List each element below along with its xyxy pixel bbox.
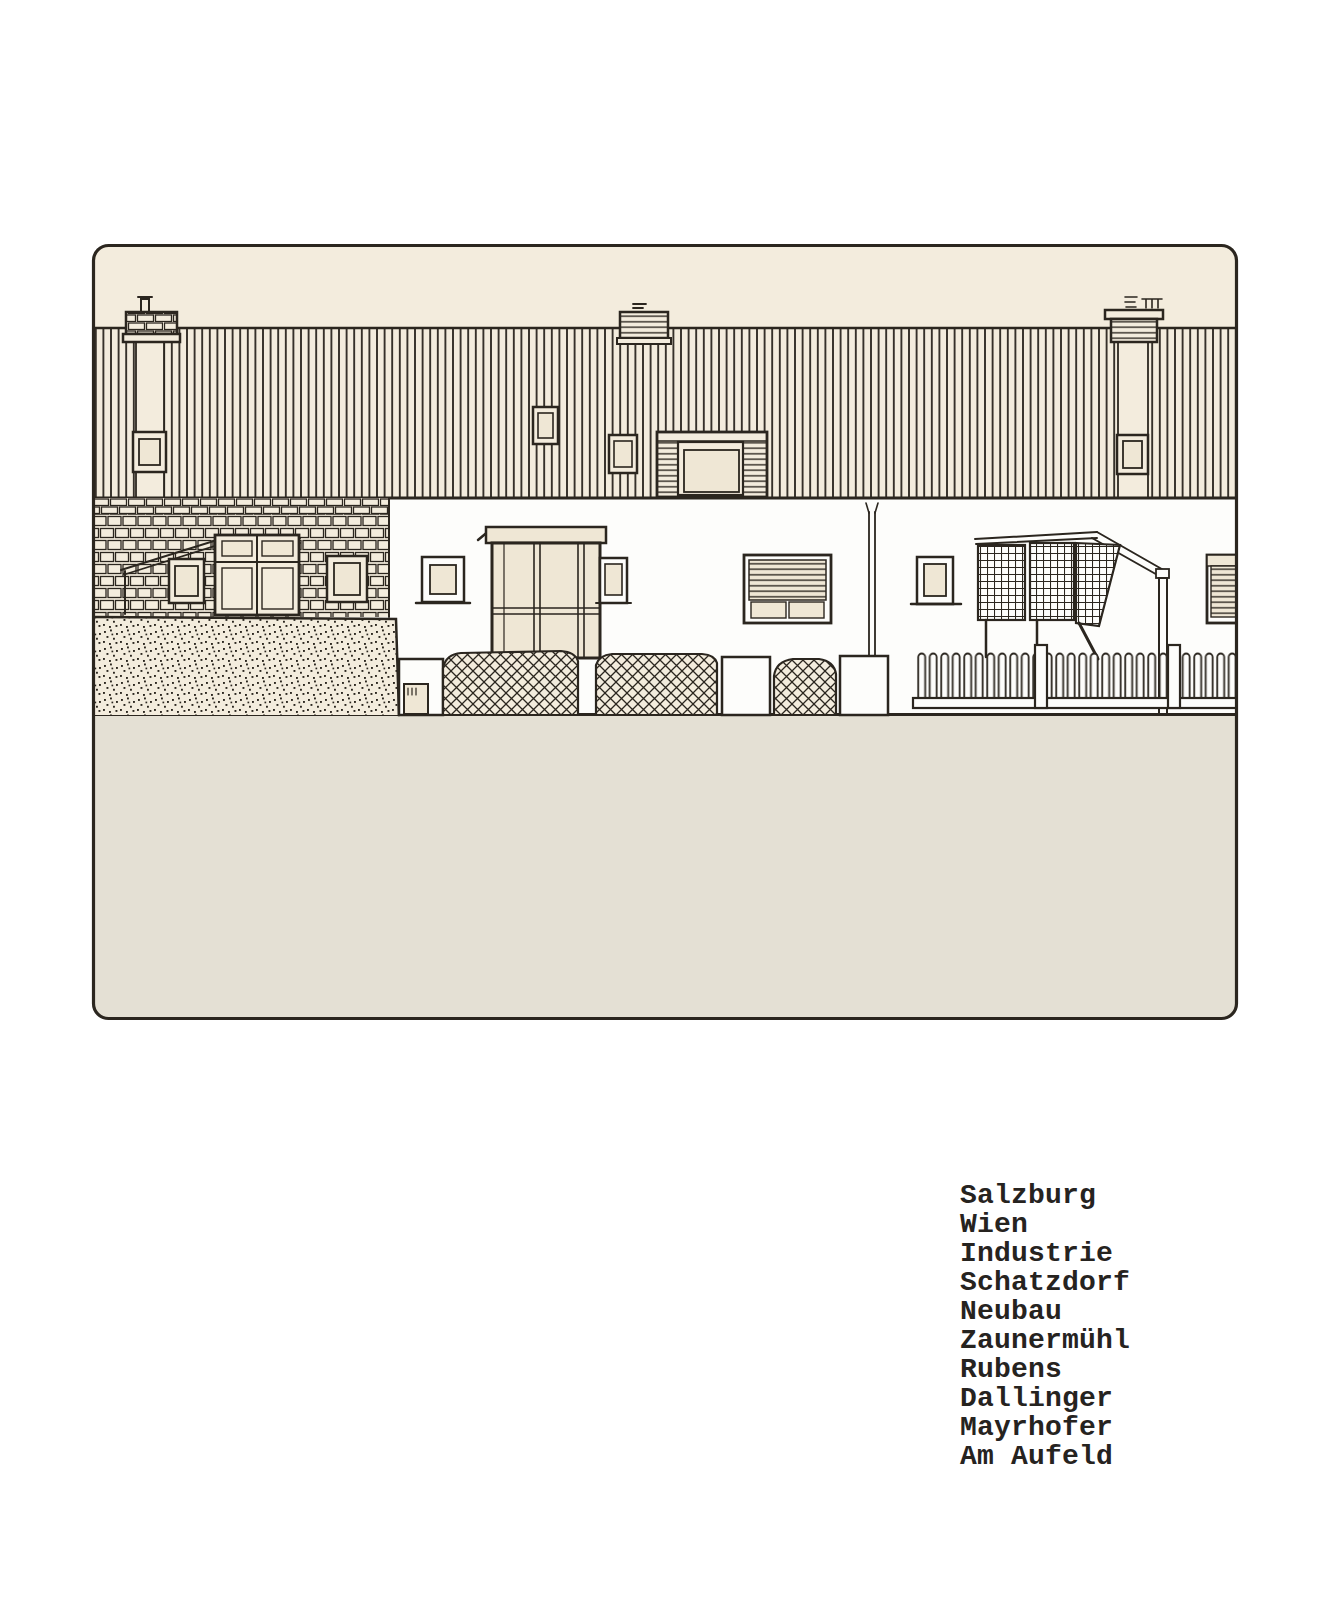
picket-fence [913, 645, 1239, 708]
shutter-window [744, 555, 831, 623]
art-print-page: Salzburg Wien Industrie Schatzdorf Neuba… [0, 0, 1334, 1600]
caption-line: Zaunermühl [960, 1326, 1130, 1355]
caption-line: Mayrhofer [960, 1413, 1130, 1442]
skylight-mid [609, 435, 637, 473]
left-house-door [215, 535, 299, 615]
hedge-2 [596, 654, 717, 715]
wall-pillar-b [722, 657, 770, 715]
wall-pillar-c [840, 656, 888, 715]
right-window-a [911, 557, 961, 604]
caption-line: Dallinger [960, 1384, 1130, 1413]
gate-pillar [399, 659, 443, 715]
left-house [92, 498, 399, 715]
caption-line: Wien [960, 1210, 1130, 1239]
caption-line: Am Aufeld [960, 1442, 1130, 1471]
middle-window-a [416, 557, 470, 603]
caption-line: Rubens [960, 1355, 1130, 1384]
caption-line: Industrie [960, 1239, 1130, 1268]
roof-dormer [657, 432, 767, 497]
illustration-interior [92, 244, 1242, 1020]
left-house-window-a [169, 559, 204, 603]
middle-window-b [596, 558, 631, 603]
front-boundary [443, 645, 1239, 715]
left-house-window-b [327, 556, 367, 602]
caption-line: Schatzdorf [960, 1268, 1130, 1297]
caption-line: Salzburg [960, 1181, 1130, 1210]
fence-post [1168, 645, 1180, 708]
hedge-1 [443, 651, 578, 715]
caption-list: Salzburg Wien Industrie Schatzdorf Neuba… [960, 1181, 1130, 1471]
chimney-flue-left [133, 342, 166, 498]
caption-line: Neubau [960, 1297, 1130, 1326]
stippled-garden-wall [92, 617, 399, 715]
chimney-flue-right [1117, 342, 1148, 498]
street-ground [92, 715, 1239, 1020]
fence-post [1035, 645, 1047, 708]
hedge-arch [774, 659, 836, 715]
skylight-small [533, 407, 558, 444]
row-houses-illustration [0, 0, 1334, 1600]
french-door [478, 527, 606, 658]
